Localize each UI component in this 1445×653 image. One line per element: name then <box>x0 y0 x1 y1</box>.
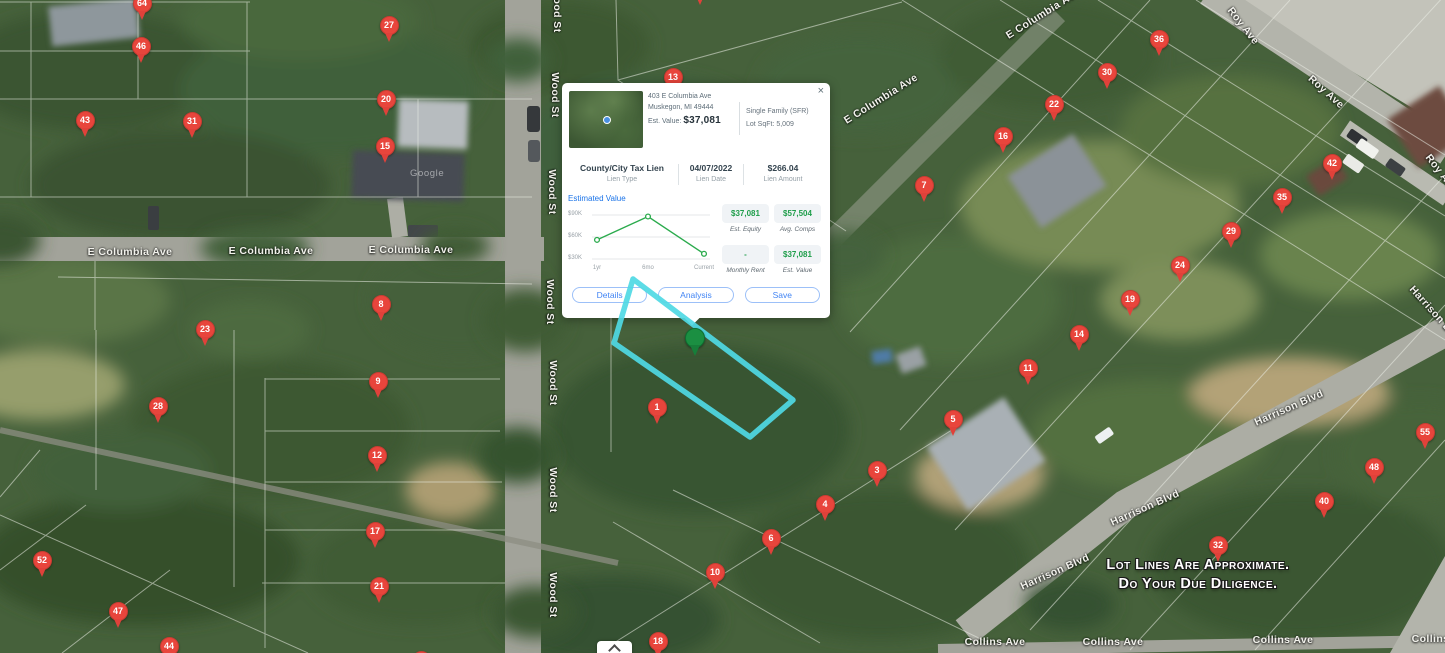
map-pin-32[interactable]: 32 <box>1209 536 1228 555</box>
map-pin-52[interactable]: 52 <box>33 551 52 570</box>
pin-number: 16 <box>998 132 1008 141</box>
map-pin-11[interactable]: 11 <box>1019 359 1038 378</box>
lien-type-value: County/City Tax Lien <box>566 163 678 173</box>
stat-monthly-rent: -Monthly Rent <box>722 245 769 274</box>
map-pin-42[interactable]: 42 <box>1323 154 1342 173</box>
stat-label: Monthly Rent <box>722 267 769 274</box>
pin-number: 20 <box>381 95 391 104</box>
map-pin-43[interactable]: 43 <box>76 111 95 130</box>
lien-date-label: Lien Date <box>679 176 743 183</box>
map-pin-14[interactable]: 14 <box>1070 325 1089 344</box>
lien-amount-label: Lien Amount <box>744 176 822 183</box>
est-value-label: Est. Value: <box>648 118 681 125</box>
pin-number: 21 <box>374 582 384 591</box>
pin-number: 43 <box>80 116 90 125</box>
map-pin-31[interactable]: 31 <box>183 112 202 131</box>
pin-number: 40 <box>1319 497 1329 506</box>
pin-number: 12 <box>372 451 382 460</box>
est-value-row: Est. Value:$37,081 <box>648 115 721 126</box>
pin-number: 48 <box>1369 463 1379 472</box>
estimated-value-chart <box>592 210 714 266</box>
pin-number: 52 <box>37 556 47 565</box>
pin-number: 28 <box>153 402 163 411</box>
map-pin-44[interactable]: 44 <box>160 637 179 653</box>
stat-label: Est. Value <box>774 267 821 274</box>
details-button[interactable]: Details <box>572 287 647 303</box>
stat-value: - <box>722 245 769 264</box>
map-pin-35[interactable]: 35 <box>1273 188 1292 207</box>
analysis-button[interactable]: Analysis <box>658 287 733 303</box>
map-pin-40[interactable]: 40 <box>1315 492 1334 511</box>
stat-value: $37,081 <box>722 204 769 223</box>
map-pin-15[interactable]: 15 <box>376 137 395 156</box>
map-pin-12[interactable]: 12 <box>368 446 387 465</box>
pin-number: 5 <box>950 415 955 424</box>
map-pin-55[interactable]: 55 <box>1416 423 1435 442</box>
pin-number: 35 <box>1277 193 1287 202</box>
save-button[interactable]: Save <box>745 287 820 303</box>
map-pin-23[interactable]: 23 <box>196 320 215 339</box>
location-dot-icon <box>603 116 611 124</box>
pin-number: 36 <box>1154 35 1164 44</box>
lien-info-row: County/City Tax Lien Lien Type 04/07/202… <box>566 163 826 185</box>
pin-number: 55 <box>1420 428 1430 437</box>
pin-number: 64 <box>137 0 147 8</box>
map-pin-4[interactable]: 4 <box>816 495 835 514</box>
map-pin-29[interactable]: 29 <box>1222 222 1241 241</box>
pin-number: 11 <box>1023 364 1033 373</box>
pin-number: 15 <box>380 142 390 151</box>
pin-number: 7 <box>921 181 926 190</box>
selected-property-pin[interactable] <box>685 328 705 348</box>
pin-number: 14 <box>1074 330 1084 339</box>
map-pin-22[interactable]: 22 <box>1045 95 1064 114</box>
popup-button-row: DetailsAnalysisSave <box>572 287 820 303</box>
property-type: Single Family (SFR) <box>746 108 809 115</box>
header-divider <box>739 102 740 135</box>
stat-value: $37,081 <box>774 245 821 264</box>
map-pin-10[interactable]: 10 <box>706 563 725 582</box>
pin-number: 10 <box>710 568 720 577</box>
pin-number: 13 <box>668 73 678 82</box>
map-pin-17[interactable]: 17 <box>366 522 385 541</box>
est-value: $37,081 <box>683 115 721 126</box>
lot-sqft: Lot SqFt: 5,009 <box>746 121 794 128</box>
pin-number: 42 <box>1327 159 1337 168</box>
stat-value: $57,504 <box>774 204 821 223</box>
map-pin-16[interactable]: 16 <box>994 127 1013 146</box>
pin-number: 4 <box>822 500 827 509</box>
stat-label: Est. Equity <box>722 226 769 233</box>
stat-est-equity: $37,081Est. Equity <box>722 204 769 233</box>
pin-number: 3 <box>874 466 879 475</box>
pin-number: 18 <box>653 637 663 646</box>
map-pin-3[interactable]: 3 <box>868 461 887 480</box>
map-pin-19[interactable]: 19 <box>1121 290 1140 309</box>
pin-number: 22 <box>1049 100 1059 109</box>
pin-number: 9 <box>375 377 380 386</box>
property-address-line1: 403 E Columbia Ave <box>648 93 711 100</box>
map-pin-9[interactable]: 9 <box>369 372 388 391</box>
map-pin-24[interactable]: 24 <box>1171 256 1190 275</box>
map-pin-7[interactable]: 7 <box>915 176 934 195</box>
map-pin-46[interactable]: 46 <box>132 37 151 56</box>
pin-number: 31 <box>187 117 197 126</box>
chevron-up-icon <box>608 644 621 653</box>
map-pin-36[interactable]: 36 <box>1150 30 1169 49</box>
pin-number: 17 <box>370 527 380 536</box>
map-pin-30[interactable]: 30 <box>1098 63 1117 82</box>
map-pin-27[interactable]: 27 <box>380 16 399 35</box>
stat-label: Avg. Comps <box>774 226 821 233</box>
map-pin-18[interactable]: 18 <box>649 632 668 651</box>
map-pin-1[interactable]: 1 <box>648 398 667 417</box>
map-pin-8[interactable]: 8 <box>372 295 391 314</box>
chart-title: Estimated Value <box>568 194 626 203</box>
pin-number: 32 <box>1213 541 1223 550</box>
close-icon[interactable]: × <box>816 84 826 99</box>
pin-number: 8 <box>378 300 383 309</box>
map-pin-64[interactable]: 64 <box>133 0 152 13</box>
pin-number: 19 <box>1125 295 1135 304</box>
map-pin-5[interactable]: 5 <box>944 410 963 429</box>
property-stats-grid: $37,081Est. Equity$57,504Avg. Comps-Mont… <box>722 204 821 274</box>
map-pin-20[interactable]: 20 <box>377 90 396 109</box>
stat-avg-comps: $57,504Avg. Comps <box>774 204 821 233</box>
property-popup: × 403 E Columbia Ave Muskegon, MI 49444 … <box>562 83 830 318</box>
pin-number: 23 <box>200 325 210 334</box>
map-canvas[interactable]: E Columbia AveE Columbia AveE Columbia A… <box>0 0 1445 653</box>
map-pin-47[interactable]: 47 <box>109 602 128 621</box>
lien-date-value: 04/07/2022 <box>679 163 743 173</box>
map-pin-48[interactable]: 48 <box>1365 458 1384 477</box>
pin-number: 44 <box>164 642 174 651</box>
pin-number: 6 <box>768 534 773 543</box>
pin-number: 1 <box>654 403 659 412</box>
pin-number: 27 <box>384 21 394 30</box>
pin-number: 46 <box>136 42 146 51</box>
lien-amount-value: $266.04 <box>744 163 822 173</box>
pin-number: 47 <box>113 607 123 616</box>
map-pin-28[interactable]: 28 <box>149 397 168 416</box>
pin-number: 24 <box>1175 261 1185 270</box>
property-address-line2: Muskegon, MI 49444 <box>648 104 713 111</box>
property-thumbnail[interactable] <box>569 91 643 148</box>
lien-type-label: Lien Type <box>566 176 678 183</box>
collapse-panel-button[interactable] <box>597 641 632 653</box>
stat-est-value: $37,081Est. Value <box>774 245 821 274</box>
map-pin-6[interactable]: 6 <box>762 529 781 548</box>
pin-number: 30 <box>1102 68 1112 77</box>
map-pin-21[interactable]: 21 <box>370 577 389 596</box>
pin-number: 29 <box>1226 227 1236 236</box>
